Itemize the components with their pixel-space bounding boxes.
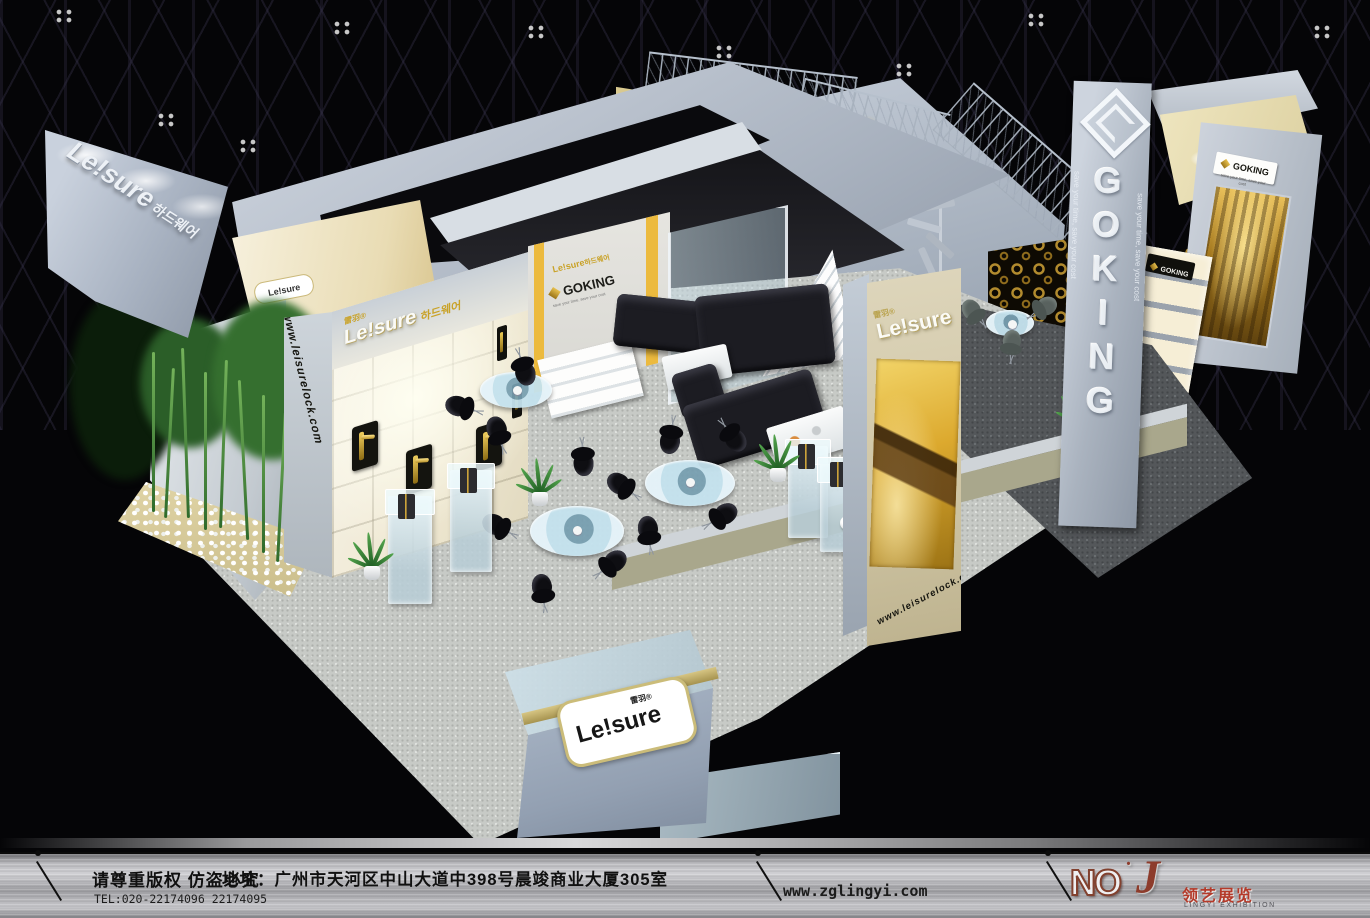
footer-slash — [36, 861, 62, 901]
goking-wall-sign: GOKING save your time, save your cost — [1213, 151, 1278, 184]
ceiling-light — [332, 20, 352, 35]
ceiling-light — [526, 24, 546, 39]
palm-plant — [512, 444, 568, 506]
ceiling-light — [54, 8, 74, 23]
ceiling-light — [156, 112, 176, 127]
bamboo-stem — [262, 395, 265, 553]
ceiling-light — [714, 44, 734, 59]
backwall-leisure-logo: Le!sure하드웨어 — [552, 252, 611, 276]
ceiling-light — [1312, 24, 1332, 39]
logo-en-text: LINGYI EXHIBITION — [1184, 902, 1276, 909]
backwall-leisure-text: Le!sure — [552, 257, 586, 274]
bamboo-stem — [204, 372, 207, 530]
door-handle-panel — [352, 420, 378, 472]
reception-counter: 雷羽® Le!sure — [495, 628, 720, 843]
address-text: 地址：广州市天河区中山大道中398号晨竣商业大厦305室 — [222, 866, 668, 890]
footer-dot — [1045, 850, 1051, 856]
footer-slash — [756, 861, 782, 901]
chair — [631, 514, 666, 558]
logo-j-text: J — [1136, 850, 1160, 905]
spiral-step — [907, 217, 942, 233]
goking-vertical-logo: GOKING — [1076, 159, 1129, 490]
goking-diamond-icon — [548, 287, 560, 299]
goking-diamond-logo — [1080, 88, 1151, 159]
alcove-logo-text: Le!sure — [267, 282, 301, 298]
leisure-product-poster — [869, 359, 960, 570]
backwall-leisure-kr: 하드웨어 — [584, 255, 611, 268]
chair — [653, 412, 688, 456]
ceiling-light — [238, 138, 258, 153]
goking-shelf-sign-text: GOKING — [1160, 266, 1189, 279]
chair-gray — [996, 328, 1026, 365]
glass-pedestal — [450, 470, 492, 572]
palm-plant — [750, 420, 806, 482]
palm-plant — [344, 518, 400, 580]
display-wall-side: www.leisurelock.com — [284, 300, 333, 580]
footer-bar: 请尊重版权 仿盗必究 TEL:020-22174096 22174095 地址：… — [0, 852, 1370, 918]
goking-diamond-icon — [1220, 159, 1230, 169]
goking-tower: GOKING save your time, save your cost sa… — [1058, 81, 1151, 528]
footer-dot — [755, 850, 761, 856]
column-leisure-logo: 雷羽® Le!sure — [872, 294, 953, 344]
footer-divider — [0, 838, 1370, 848]
counter-logo-text: Le!sure — [573, 700, 664, 749]
noj-logo: NO . J 领艺展览 LINGYI EXHIBITION — [1060, 856, 1360, 918]
leisure-column-side — [843, 274, 869, 636]
tel-text: TEL:020-22174096 22174095 — [94, 892, 267, 906]
logo-no-text: NO — [1070, 862, 1120, 904]
ceiling-light — [894, 62, 914, 77]
leisure-wall-logo-kr: 하드웨어 — [421, 300, 461, 324]
bamboo-stem — [152, 352, 155, 512]
door-handle-panel — [406, 443, 432, 495]
logo-dot-text: . — [1126, 848, 1131, 871]
exhibition-render: Le!sure GOKING save your time, save your… — [0, 0, 1370, 918]
website-text: www.zglingyi.com — [783, 882, 928, 900]
footer-dot — [35, 850, 41, 856]
chair — [525, 572, 560, 616]
goking-shelf-sign: GOKING — [1145, 253, 1196, 281]
chair — [567, 435, 600, 477]
goking-diamond-icon — [1149, 262, 1157, 270]
leisure-url-side-text: www.leisurelock.com — [280, 312, 325, 445]
leisure-column-front: 雷羽® Le!sure www.leisurelock.com — [867, 268, 961, 646]
ceiling-light — [1026, 12, 1046, 27]
goking-diamond-inner — [1096, 103, 1136, 143]
leisure-column: 雷羽® Le!sure www.leisurelock.com — [843, 268, 963, 648]
leisure-3d-sign-kr: 하드웨어 — [148, 201, 202, 241]
backwall-goking-logo: GOKING save your time, save your cost — [548, 271, 619, 310]
registered-mark: ® — [888, 307, 896, 317]
